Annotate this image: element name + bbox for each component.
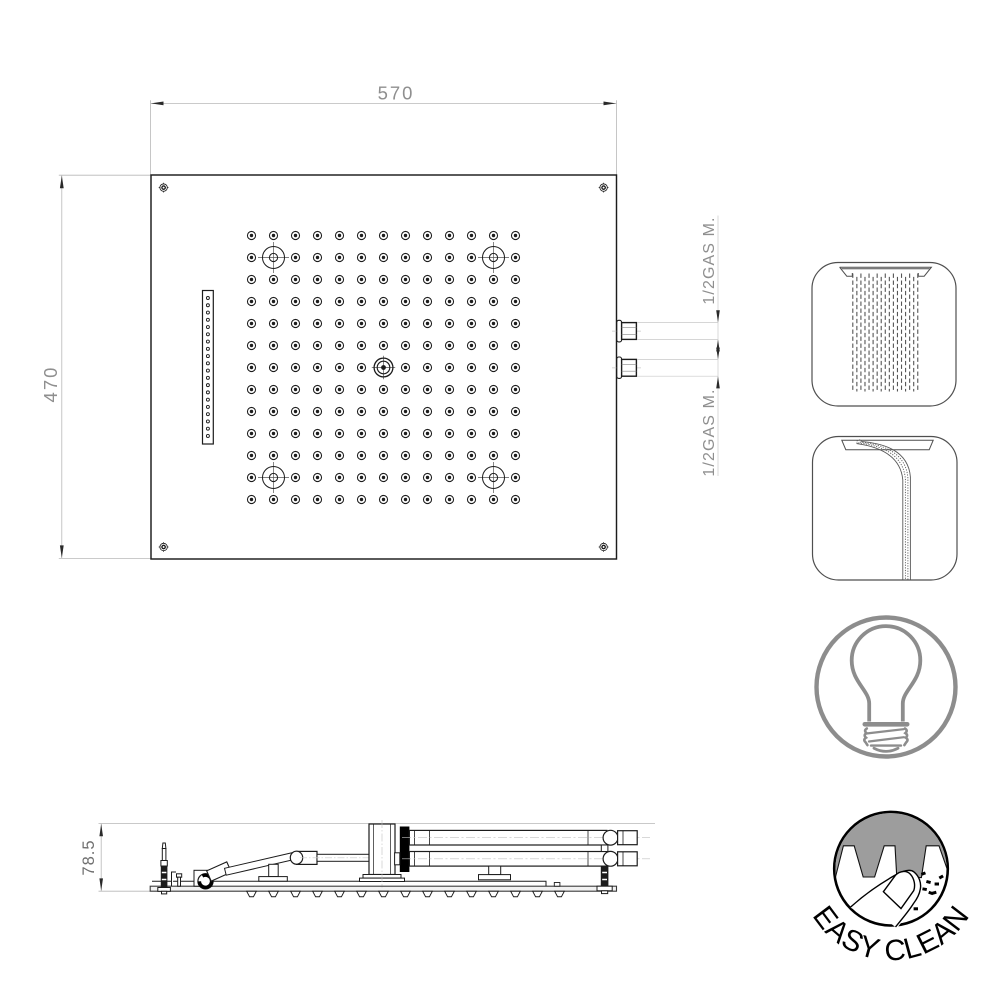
svg-text:470: 470: [40, 366, 61, 403]
svg-text:570: 570: [378, 83, 415, 104]
svg-text:1/2GAS M.: 1/2GAS M.: [701, 388, 718, 476]
svg-text:1/2GAS M.: 1/2GAS M.: [701, 216, 718, 304]
svg-text:78.5: 78.5: [80, 839, 98, 875]
